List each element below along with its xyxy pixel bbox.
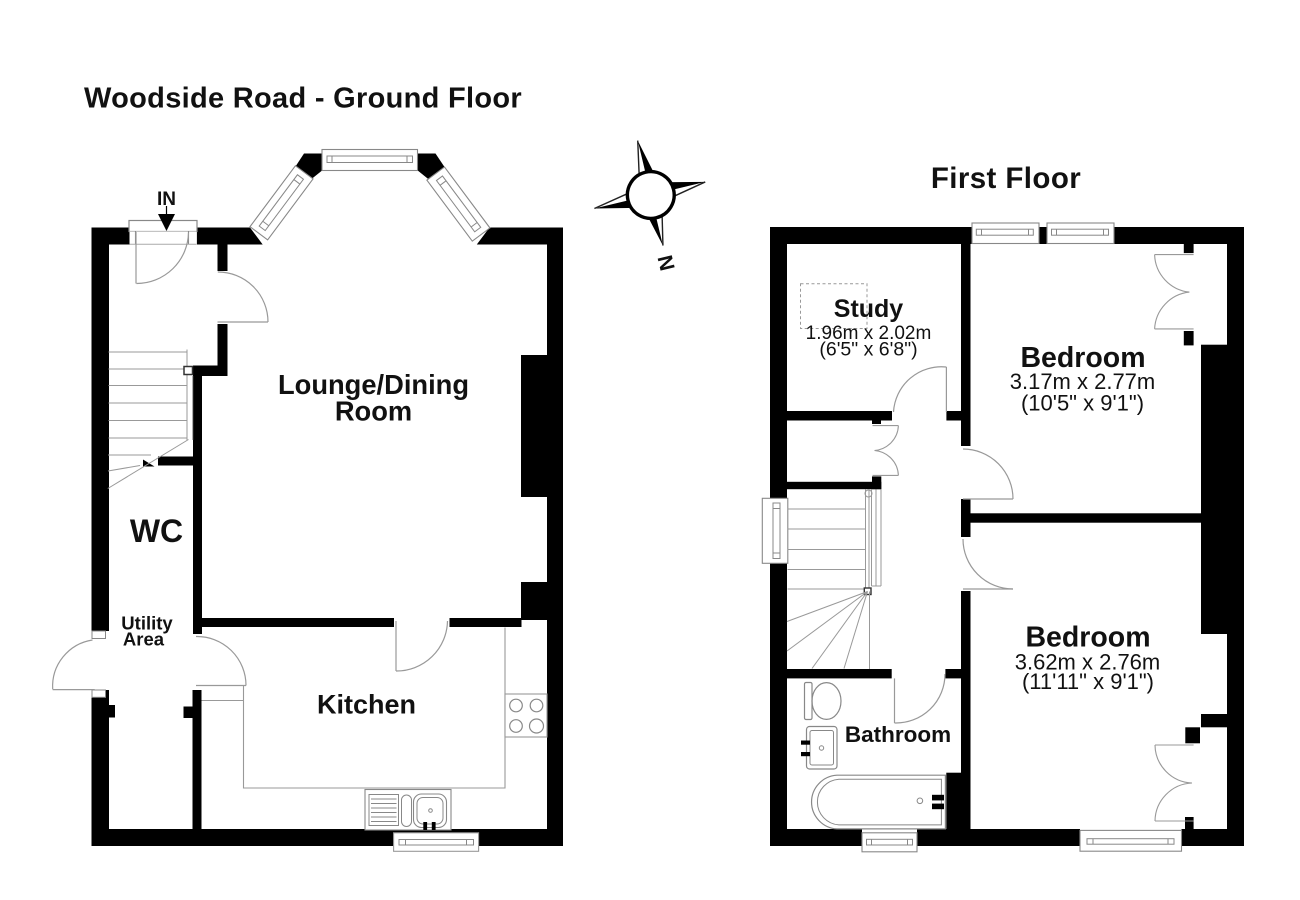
svg-text:Room: Room [335,396,412,427]
svg-text:First Floor: First Floor [931,162,1081,195]
svg-text:Woodside Road - Ground Floor: Woodside Road - Ground Floor [84,83,522,115]
svg-text:Area: Area [123,629,165,650]
svg-text:Study: Study [834,295,904,323]
svg-text:(6'5" x 6'8"): (6'5" x 6'8") [819,339,917,361]
svg-text:(10'5" x 9'1"): (10'5" x 9'1") [1021,391,1144,416]
svg-text:(11'11" x 9'1"): (11'11" x 9'1") [1022,669,1154,694]
svg-text:WC: WC [130,513,183,549]
svg-text:Bathroom: Bathroom [845,722,951,747]
svg-text:Kitchen: Kitchen [317,690,416,720]
